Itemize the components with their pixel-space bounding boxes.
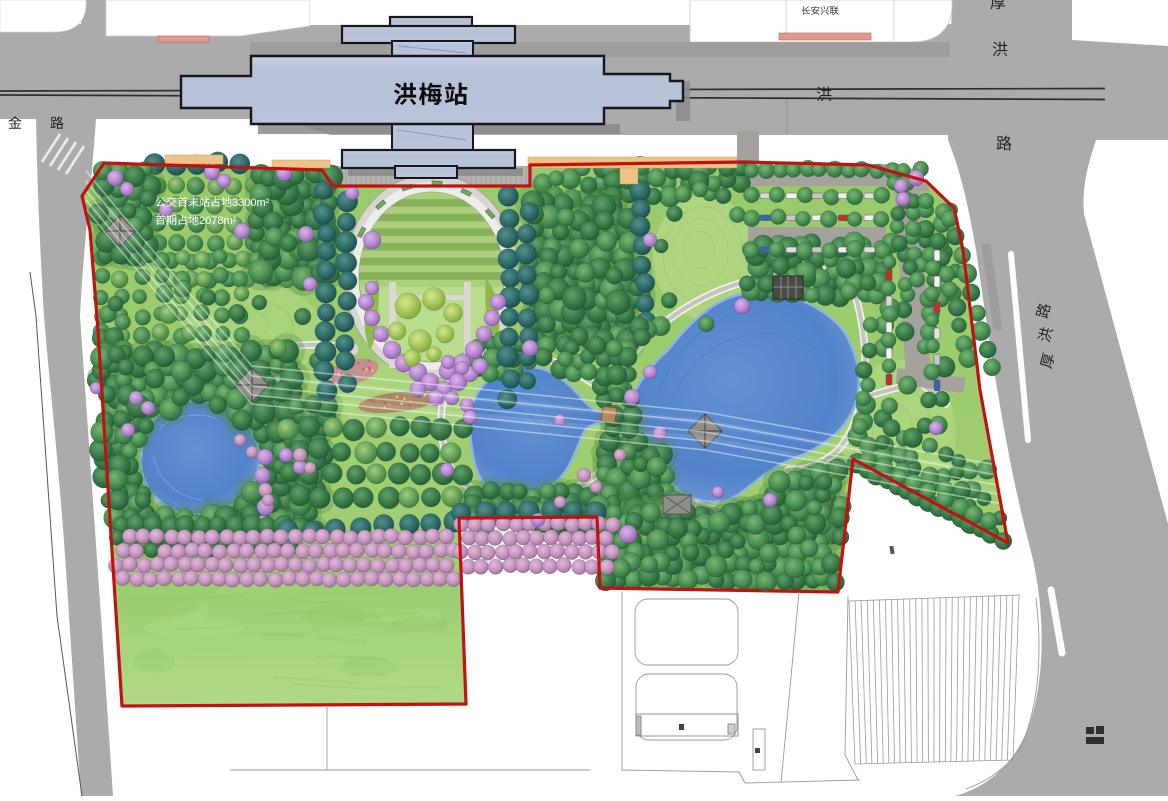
svg-text:3300m²: 3300m² xyxy=(232,197,270,209)
svg-text:2078m²: 2078m² xyxy=(199,215,237,227)
